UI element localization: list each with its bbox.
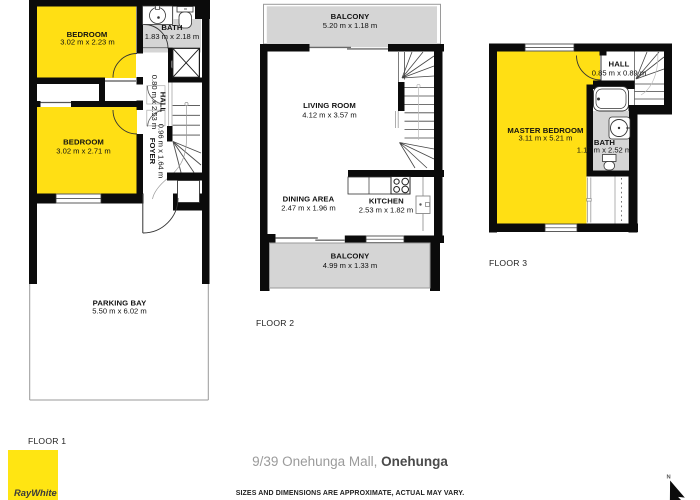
svg-text:3.02 m x 2.71 m: 3.02 m x 2.71 m [56, 147, 110, 156]
svg-text:FLOOR 1: FLOOR 1 [28, 436, 66, 446]
svg-text:FLOOR 3: FLOOR 3 [489, 258, 527, 268]
svg-text:KITCHEN: KITCHEN [369, 197, 404, 206]
svg-text:3.02 m x 2.23 m: 3.02 m x 2.23 m [60, 37, 114, 46]
svg-text:3.11 m x 5.21 m: 3.11 m x 5.21 m [519, 134, 573, 143]
svg-text:FLOOR 2: FLOOR 2 [256, 318, 294, 328]
svg-text:4.99 m x 1.33 m: 4.99 m x 1.33 m [323, 261, 377, 270]
svg-text:2.53 m x 1.82 m: 2.53 m x 1.82 m [359, 205, 413, 214]
svg-text:4.12 m x 3.57 m: 4.12 m x 3.57 m [302, 110, 356, 119]
svg-text:0.80 m x 2.53 m: 0.80 m x 2.53 m [150, 75, 159, 129]
svg-text:5.50 m x 6.02 m: 5.50 m x 6.02 m [92, 307, 146, 316]
svg-text:FOYER: FOYER [148, 138, 157, 165]
svg-text:BALCONY: BALCONY [331, 12, 370, 21]
svg-text:0.85 m x 0.89 m: 0.85 m x 0.89 m [592, 69, 646, 78]
svg-text:SIZES AND DIMENSIONS ARE APPRO: SIZES AND DIMENSIONS ARE APPROXIMATE, AC… [236, 490, 465, 497]
svg-text:BEDROOM: BEDROOM [63, 137, 104, 146]
svg-text:1.83 m x 2.18 m: 1.83 m x 2.18 m [145, 32, 199, 41]
svg-text:2.47 m x 1.96 m: 2.47 m x 1.96 m [281, 204, 335, 213]
svg-text:1.17 m x 2.52 m: 1.17 m x 2.52 m [577, 145, 631, 154]
svg-text:HALL: HALL [609, 60, 630, 69]
svg-text:LIVING ROOM: LIVING ROOM [303, 101, 356, 110]
svg-text:BATH: BATH [161, 23, 183, 32]
svg-text:RayWhite: RayWhite [14, 487, 57, 498]
svg-text:BALCONY: BALCONY [331, 252, 370, 261]
svg-text:DINING AREA: DINING AREA [283, 195, 335, 204]
svg-text:N: N [667, 475, 671, 481]
svg-text:9/39 Onehunga Mall, Onehunga: 9/39 Onehunga Mall, Onehunga [252, 454, 448, 469]
svg-text:0.96 m x 1.64 m: 0.96 m x 1.64 m [157, 124, 166, 178]
svg-text:5.20 m x 1.18 m: 5.20 m x 1.18 m [323, 21, 377, 30]
